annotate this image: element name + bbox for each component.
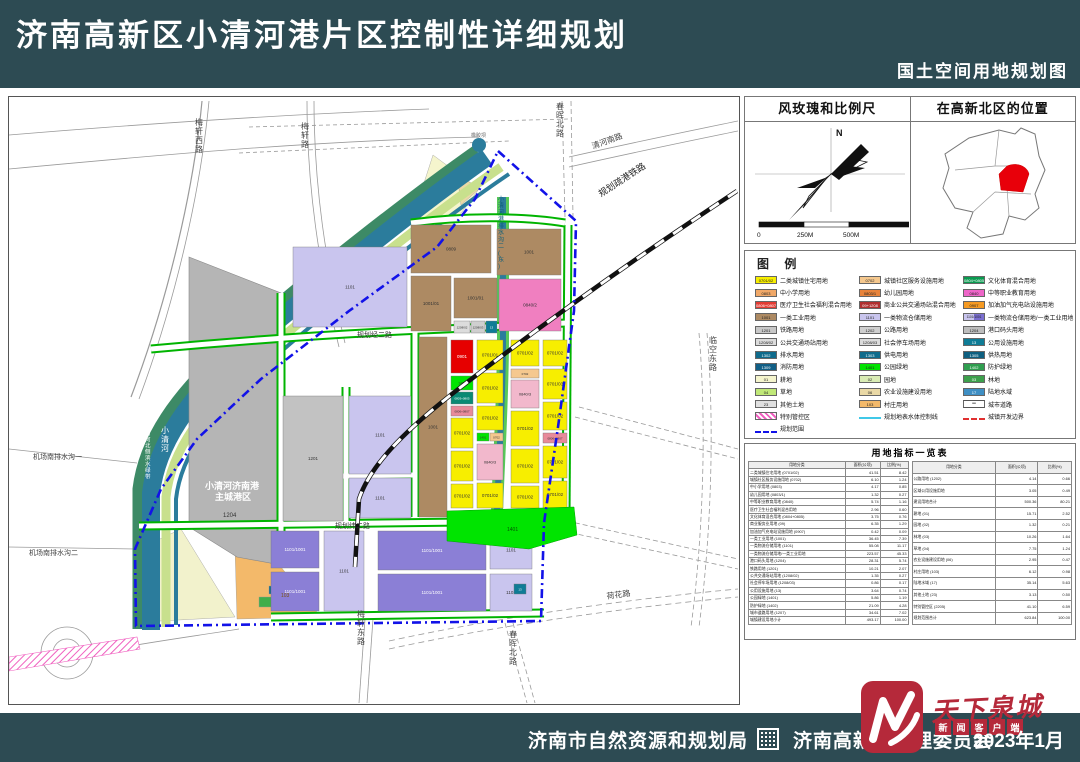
- svg-text:小清河济南港: 小清河济南港: [204, 480, 260, 491]
- planning-sheet: 济南高新区小清河港片区控制性详细规划 国土空间用地规划图: [0, 0, 1080, 762]
- legend-item: 23其他土地: [755, 398, 859, 410]
- table-row: 区域公用设施用地3.050.49: [912, 485, 1072, 497]
- svg-text:0701/03: 0701/03: [547, 382, 564, 387]
- map-text-label: 梅轩路: [301, 121, 309, 149]
- table-row: 二类城镇住宅用地 (0701/02)41.518.42: [749, 469, 909, 476]
- map-text-label: 清河南路: [590, 131, 623, 151]
- svg-text:0840/3: 0840/3: [484, 460, 497, 465]
- page-title: 济南高新区小清河港片区控制性详细规划: [16, 10, 628, 55]
- svg-text:500M: 500M: [843, 232, 859, 239]
- svg-text:13: 13: [518, 588, 522, 592]
- header: 济南高新区小清河港片区控制性详细规划 国土空间用地规划图: [0, 0, 1080, 88]
- table-row: 公园绿地 (1401)5.861.19: [749, 595, 909, 602]
- legend-item: 17陆地水域: [963, 386, 1073, 398]
- table-row: 园地 (02)1.320.21: [912, 520, 1072, 532]
- table-row: 陆地水域 (17)35.145.63: [912, 578, 1072, 590]
- svg-text:1208/03: 1208/03: [473, 326, 484, 330]
- table-row: 建设用地合计500.3680.21: [912, 496, 1072, 508]
- qr-code-icon: [757, 728, 779, 750]
- table-row: 一类工业用地 (1001)36.457.39: [749, 535, 909, 542]
- table-row: 公用设施用地 (13)3.640.74: [749, 587, 909, 594]
- map-text-label: 荷花路: [606, 588, 631, 601]
- map-text-label: 小清河北侧滨水绿带: [145, 423, 151, 480]
- table-row: 中等职业教育用地 (0840)5.741.16: [749, 498, 909, 505]
- svg-text:1101: 1101: [345, 285, 355, 290]
- svg-text:0701/02: 0701/02: [454, 431, 471, 436]
- legend-item: 1302排水用地: [755, 348, 859, 360]
- map-text-label: 春晖北路: [509, 629, 517, 666]
- svg-text:1101: 1101: [339, 569, 349, 574]
- svg-text:0701/02: 0701/02: [547, 414, 564, 419]
- table-row: 农业设施建设用地 (06)2.950.47: [912, 554, 1072, 566]
- legend-item: 01耕地: [755, 373, 859, 385]
- footer-date: 2023年1月: [973, 726, 1064, 753]
- sheet-subtitle: 国土空间用地规划图: [897, 57, 1068, 82]
- legend-item: 1303供电用地: [859, 348, 963, 360]
- map-text-label: 规划经二路: [357, 330, 392, 339]
- svg-text:1001: 1001: [524, 250, 535, 255]
- svg-text:13: 13: [490, 326, 494, 330]
- footer: 济南市自然资源和规划局 济南高新区管理委员会 2023年1月: [0, 713, 1080, 762]
- legend-item: 1401公园绿地: [859, 361, 963, 373]
- table-row: 一类物流仓储用地 (1101)55.0811.17: [749, 543, 909, 550]
- map-text-label: 规划疏港铁路: [596, 160, 647, 199]
- table-title: 用地指标一览表: [745, 446, 1075, 459]
- legend-item: 0803中小学用地: [755, 286, 859, 298]
- svg-text:0840/3: 0840/3: [519, 392, 532, 397]
- table-row: 村庄用地 (103)6.120.98: [912, 566, 1072, 578]
- map-text-label: 机场南排水沟一: [33, 452, 82, 461]
- svg-text:1401: 1401: [480, 436, 487, 440]
- info-panels: 风玫瑰和比例尺 N 0250M500M1000M 在高新北区的位置: [744, 96, 1076, 244]
- table-row: 城镇建设用地小计493.17100.00: [749, 617, 909, 624]
- map-text-label: 小清河港排水沟二(东): [498, 195, 504, 270]
- special-control-strip: [9, 637, 140, 671]
- legend-grid: 0701/02二类城镇住宅用地0803中小学用地0806+0807医疗卫生社会福…: [745, 274, 1075, 435]
- svg-text:0701/02: 0701/02: [482, 386, 499, 391]
- svg-text:0702: 0702: [522, 372, 529, 376]
- map-text-label: 规划纬二路: [335, 521, 370, 530]
- legend-item: 1305供热用地: [963, 348, 1073, 360]
- map-text-label: 梅轩西路: [195, 117, 203, 154]
- legend-item: 02园地: [859, 373, 963, 385]
- table-row: 其他土地 (23)3.130.50: [912, 589, 1072, 601]
- windrose-panel: 风玫瑰和比例尺 N 0250M500M1000M: [745, 97, 911, 243]
- landuse-index-table: 用地指标一览表 用地分类面积(公顷)比例(%)二类城镇住宅用地 (0701/02…: [744, 443, 1076, 640]
- table-row: 草地 (04)7.751.24: [912, 543, 1072, 555]
- table-row: 加油加气充电站设施用地 (0907)0.420.09: [749, 528, 909, 535]
- table-left: 用地分类面积(公顷)比例(%)二类城镇住宅用地 (0701/02)41.518.…: [748, 461, 909, 625]
- legend-item: 1101/1001一类物流仓储用地/一类工业用地: [963, 311, 1073, 323]
- location-title: 在高新北区的位置: [911, 97, 1076, 122]
- map-text-label: 1401: [507, 527, 518, 533]
- table-row: 公共交通场站用地 (1208/02)1.350.27: [749, 572, 909, 579]
- svg-text:0701/02: 0701/02: [482, 416, 499, 421]
- svg-text:0702: 0702: [493, 436, 500, 440]
- svg-text:0701/01: 0701/01: [482, 353, 499, 358]
- svg-text:0701/02: 0701/02: [517, 351, 534, 356]
- table-row: 林地 (03)10.261.64: [912, 531, 1072, 543]
- landuse-blocks: 080910010840/21001/011001/011208/021208/…: [271, 225, 567, 611]
- svg-text:1101/1001: 1101/1001: [422, 590, 443, 595]
- table-row: 铁路用地 (1201)10.212.07: [749, 565, 909, 572]
- map-labels: 梅轩西路梅轩路春晖北路清河南路规划疏港铁路临空东路小清河港排水沟二(东)规划经二…: [29, 101, 717, 666]
- legend-item: 规划范围: [755, 423, 859, 435]
- legend-item: 0804+0805文化体育混合用地: [963, 274, 1073, 286]
- legend-item: 城镇开发边界: [963, 410, 1073, 422]
- svg-text:0: 0: [757, 232, 761, 239]
- svg-text:主城港区: 主城港区: [215, 491, 251, 502]
- legend-item: 0806+0807医疗卫生社会福利混合用地: [755, 299, 859, 311]
- table-row: 医疗卫生社会福利混合用地2.960.60: [749, 506, 909, 513]
- svg-text:0901: 0901: [457, 354, 468, 359]
- location-map: [911, 122, 1075, 242]
- svg-text:0840/2: 0840/2: [523, 303, 537, 308]
- legend-item: 1208/02公共交通场站用地: [755, 336, 859, 348]
- svg-text:0809: 0809: [446, 247, 457, 252]
- table-row: 规划范围合计623.84100.00: [912, 612, 1072, 624]
- legend-item: 03林地: [963, 373, 1073, 385]
- table-row: 特别管控区 (2205)41.106.59: [912, 601, 1072, 613]
- scale-bar: 0250M500M1000M: [757, 222, 909, 239]
- legend-item: 1309消防用地: [755, 361, 859, 373]
- table-row: 公路用地 (1202)4.140.66: [912, 473, 1072, 485]
- svg-text:1201: 1201: [308, 456, 319, 461]
- map-text-label: 橡胶坝: [471, 132, 486, 139]
- map-text-label: 梅轩东路: [357, 609, 365, 646]
- svg-text:0701/02: 0701/02: [517, 495, 534, 500]
- table-row: 城镇社区服务设施用地 (0702)6.101.24: [749, 476, 909, 483]
- table-row: 商业服务业用地 (09)6.351.29: [749, 521, 909, 528]
- map-text-label: 临空东路: [709, 335, 717, 372]
- legend-item: 04草地: [755, 386, 859, 398]
- legend-item: 1204港口码头用地: [963, 324, 1073, 336]
- svg-text:1001/01: 1001/01: [423, 301, 440, 306]
- table-row: 港口码头用地 (1204)28.315.74: [749, 558, 909, 565]
- legend-item: 0803/1幼儿园用地: [859, 286, 963, 298]
- svg-text:0701/02: 0701/02: [454, 494, 471, 499]
- table-row: 城市道路用地 (1207)34.617.02: [749, 609, 909, 616]
- svg-text:1101/1001: 1101/1001: [422, 548, 443, 553]
- table-row: 幼儿园用地 (0803/1)1.320.27: [749, 491, 909, 498]
- svg-text:0701/02: 0701/02: [547, 351, 564, 356]
- svg-text:0803+0805: 0803+0805: [454, 397, 469, 401]
- map-text-label: 春晖北路: [556, 101, 564, 138]
- map-text-label: 机场南排水沟二: [29, 548, 78, 557]
- table-row: 中小学用地 (0803)4.170.85: [749, 484, 909, 491]
- table-row: 耕地 (01)15.712.52: [912, 508, 1072, 520]
- legend-item: 09+1208商业公共交通场站混合用地: [859, 299, 963, 311]
- svg-text:0701/02: 0701/02: [547, 460, 564, 465]
- svg-text:0701/02: 0701/02: [454, 464, 471, 469]
- legend-item: ═城市道路: [963, 398, 1073, 410]
- legend-item: 1001一类工业用地: [755, 311, 859, 323]
- legend-item: 06农业设施建设用地: [859, 386, 963, 398]
- legend-panel: 图 例 0701/02二类城镇住宅用地0803中小学用地0806+0807医疗卫…: [744, 250, 1076, 439]
- legend-item: 1402防护绿地: [963, 361, 1073, 373]
- legend-item: 特别管控区: [755, 410, 859, 422]
- table-right: 用地分类面积(公顷)比例(%)公路用地 (1202)4.140.66区域公用设施…: [912, 461, 1073, 625]
- table-row: 防护绿地 (1402)21.094.28: [749, 602, 909, 609]
- legend-item: 1208/03社会停车场用地: [859, 336, 963, 348]
- svg-text:1101/1001: 1101/1001: [285, 547, 306, 552]
- legend-item: 0840中等职业教育用地: [963, 286, 1073, 298]
- windrose-graphic: N 0250M500M1000M: [745, 122, 909, 242]
- legend-title: 图 例: [757, 255, 1075, 272]
- location-panel: 在高新北区的位置: [911, 97, 1076, 243]
- table-row: 社会停车场用地 (1208/03)0.860.17: [749, 580, 909, 587]
- svg-text:1208/02: 1208/02: [457, 326, 468, 330]
- legend-item: 0702城镇社区服务设施用地: [859, 274, 963, 286]
- svg-text:1101: 1101: [375, 496, 385, 501]
- svg-text:0701/02: 0701/02: [517, 426, 534, 431]
- svg-text:1101: 1101: [506, 548, 516, 553]
- svg-text:1204: 1204: [223, 513, 237, 519]
- legend-item: 1202公路用地: [859, 324, 963, 336]
- footer-agency-1: 济南市自然资源和规划局: [528, 726, 748, 753]
- legend-item: 0701/02二类城镇住宅用地: [755, 274, 859, 286]
- svg-text:1001/01: 1001/01: [467, 296, 484, 301]
- table-row: 文化体育混合用地 (0804+0805)3.750.76: [749, 513, 909, 520]
- map-panel: 080910010840/21001/011001/011208/021208/…: [8, 96, 740, 705]
- windrose-title: 风玫瑰和比例尺: [745, 97, 910, 122]
- map-text-label: 小清河: [161, 426, 169, 453]
- svg-text:N: N: [836, 128, 843, 138]
- svg-text:0701/02: 0701/02: [517, 464, 534, 469]
- landuse-map: 080910010840/21001/011001/011208/021208/…: [9, 97, 738, 703]
- table-row: 一类物流仓储用地/一类工业用地223.5745.33: [749, 550, 909, 557]
- legend-item: 13公用设施用地: [963, 336, 1073, 348]
- svg-text:0806+0807: 0806+0807: [454, 410, 469, 414]
- footer-agency-2: 济南高新区管理委员会: [793, 726, 993, 753]
- map-text-label: 103: [281, 593, 290, 599]
- legend-item: 1201铁路用地: [755, 324, 859, 336]
- svg-text:250M: 250M: [797, 232, 813, 239]
- svg-text:1001: 1001: [428, 425, 439, 430]
- svg-text:0701/02: 0701/02: [482, 493, 499, 498]
- legend-item: 0907加油加气充电站设施用地: [963, 299, 1073, 311]
- legend-item: 103村庄用地: [859, 398, 963, 410]
- legend-item: 规划地表水体控制线: [859, 410, 963, 422]
- legend-item: 1101一类物流仓储用地: [859, 311, 963, 323]
- svg-text:1101: 1101: [375, 433, 385, 438]
